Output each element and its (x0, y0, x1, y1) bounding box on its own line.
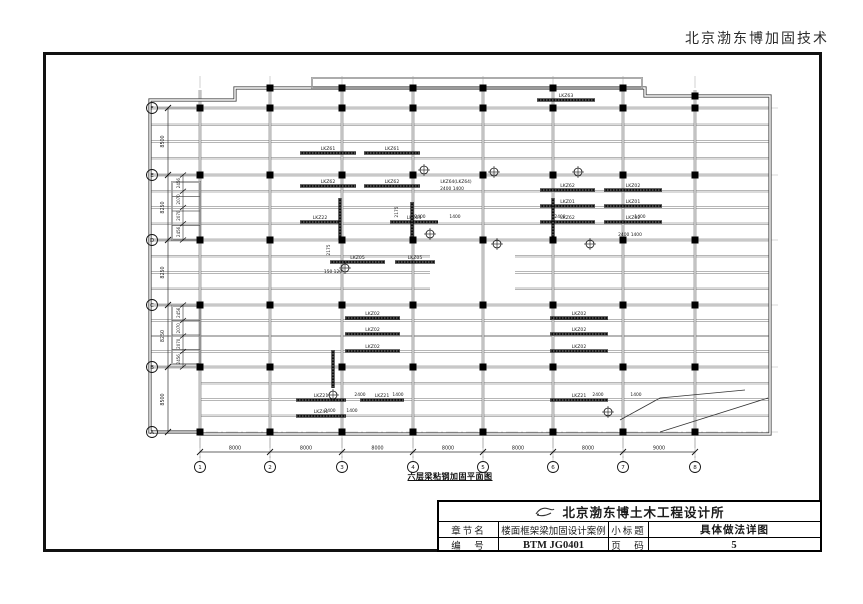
svg-text:8000: 8000 (442, 446, 454, 452)
svg-text:LKZ02: LKZ02 (365, 327, 380, 333)
svg-text:8250: 8250 (160, 330, 166, 342)
svg-text:2400: 2400 (592, 392, 603, 398)
svg-text:LKZ62: LKZ62 (385, 179, 400, 185)
svg-text:LKZ61: LKZ61 (385, 146, 400, 152)
svg-text:2070: 2070 (176, 194, 181, 205)
svg-text:1400: 1400 (449, 214, 460, 220)
drawing-number-value: BTM JG0401 (499, 538, 609, 552)
svg-text:LKZ62: LKZ62 (560, 183, 575, 189)
svg-text:LKZ05: LKZ05 (408, 255, 423, 261)
svg-text:8250: 8250 (160, 266, 166, 278)
svg-text:2400: 2400 (554, 214, 565, 220)
plan-caption: 六层梁粘钢加固平面图 (390, 471, 510, 482)
svg-text:8000: 8000 (582, 446, 594, 452)
design-institute-logo-icon (534, 505, 556, 518)
svg-text:LKZ01: LKZ01 (626, 199, 641, 205)
dimension-chain-left: 8500825082508250850024562070207024562456… (147, 103, 197, 438)
svg-text:E: E (150, 173, 154, 179)
dimension-chain-bottom: 800080008000800080008000900012345678 (195, 438, 701, 473)
title-block-company-row: 北京渤东博土木工程设计所 (439, 502, 820, 522)
design-institute-name: 北京渤东博土木工程设计所 (562, 502, 724, 521)
svg-text:2070: 2070 (176, 323, 181, 334)
svg-text:2456: 2456 (176, 354, 181, 365)
svg-text:9000: 9000 (653, 446, 665, 452)
svg-text:8500: 8500 (160, 135, 166, 147)
svg-text:2400: 2400 (414, 214, 425, 220)
svg-text:8000: 8000 (512, 446, 524, 452)
chapter-value: 楼面框架梁加固设计案例 (499, 522, 609, 537)
svg-text:LKZ22: LKZ22 (313, 215, 328, 221)
svg-text:LKZ02: LKZ02 (365, 344, 380, 350)
svg-text:3: 3 (340, 465, 344, 471)
svg-text:7: 7 (621, 465, 625, 471)
svg-text:2456: 2456 (176, 307, 181, 318)
svg-text:2400 1400: 2400 1400 (440, 186, 464, 192)
title-block-chapter-row: 章节名 楼面框架梁加固设计案例 小标题 具体做法详图 (439, 522, 820, 537)
svg-text:1400: 1400 (346, 408, 357, 414)
svg-text:LKZ02: LKZ02 (365, 311, 380, 317)
svg-text:2456: 2456 (176, 178, 181, 189)
number-label: 编 号 (439, 538, 499, 552)
svg-text:8000: 8000 (300, 446, 312, 452)
svg-text:LKZ64(LKZ64): LKZ64(LKZ64) (440, 179, 472, 185)
svg-text:2400: 2400 (354, 392, 365, 398)
svg-text:LKZ02: LKZ02 (572, 344, 587, 350)
page-number-value: 5 (649, 538, 820, 552)
svg-text:C: C (150, 303, 154, 309)
title-block: 北京渤东博土木工程设计所 章节名 楼面框架梁加固设计案例 小标题 具体做法详图 … (437, 500, 822, 552)
svg-text:1400: 1400 (392, 392, 403, 398)
svg-text:LKZ61: LKZ61 (321, 146, 336, 152)
svg-text:8000: 8000 (371, 446, 383, 452)
svg-text:2400: 2400 (324, 408, 335, 414)
page-label: 页 码 (609, 538, 649, 552)
svg-text:1400: 1400 (630, 392, 641, 398)
svg-text:2: 2 (268, 465, 272, 471)
svg-text:2175: 2175 (394, 206, 400, 217)
svg-text:LKZ21: LKZ21 (572, 393, 587, 399)
subtitle-value: 具体做法详图 (649, 522, 820, 537)
svg-text:LKZ63: LKZ63 (559, 93, 574, 99)
svg-text:D: D (150, 238, 154, 244)
svg-text:LKZ62: LKZ62 (321, 179, 336, 185)
subtitle-label: 小标题 (609, 522, 649, 537)
svg-text:LKZ05: LKZ05 (350, 255, 365, 261)
svg-text:LKZ02: LKZ02 (626, 183, 641, 189)
chapter-label: 章节名 (439, 522, 499, 537)
svg-text:8500: 8500 (160, 393, 166, 405)
svg-text:LKZ21: LKZ21 (314, 393, 329, 399)
svg-text:2070: 2070 (176, 210, 181, 221)
svg-text:LKZ21: LKZ21 (375, 393, 390, 399)
svg-text:1: 1 (198, 465, 202, 471)
svg-text:2400 1400: 2400 1400 (618, 232, 642, 238)
svg-text:1400: 1400 (634, 214, 645, 220)
svg-text:150 120: 150 120 (324, 269, 342, 275)
svg-text:8: 8 (693, 465, 697, 471)
title-block-number-row: 编 号 BTM JG0401 页 码 5 (439, 537, 820, 552)
beam-ladders (150, 125, 770, 416)
building-outline (150, 88, 770, 434)
svg-text:2456: 2456 (176, 226, 181, 237)
svg-text:F: F (150, 106, 153, 112)
svg-text:8250: 8250 (160, 201, 166, 213)
annotation-texts: LKZ64(LKZ64)2400 14002400 14002400140024… (324, 179, 646, 414)
svg-text:B: B (150, 365, 154, 371)
svg-text:8000: 8000 (229, 446, 241, 452)
svg-text:LKZ02: LKZ02 (572, 327, 587, 333)
svg-text:A: A (150, 430, 154, 436)
drawing-sheet-page: 北京渤东博加固技术 LKZ61LKZ61LKZ63LKZ62LKZ62LKZ62… (0, 0, 863, 604)
svg-text:2175: 2175 (326, 244, 332, 255)
svg-text:LKZ01: LKZ01 (560, 199, 575, 205)
svg-text:LKZ02: LKZ02 (572, 311, 587, 317)
grid-axes (146, 76, 778, 461)
svg-text:6: 6 (551, 465, 555, 471)
svg-text:2070: 2070 (176, 338, 181, 349)
